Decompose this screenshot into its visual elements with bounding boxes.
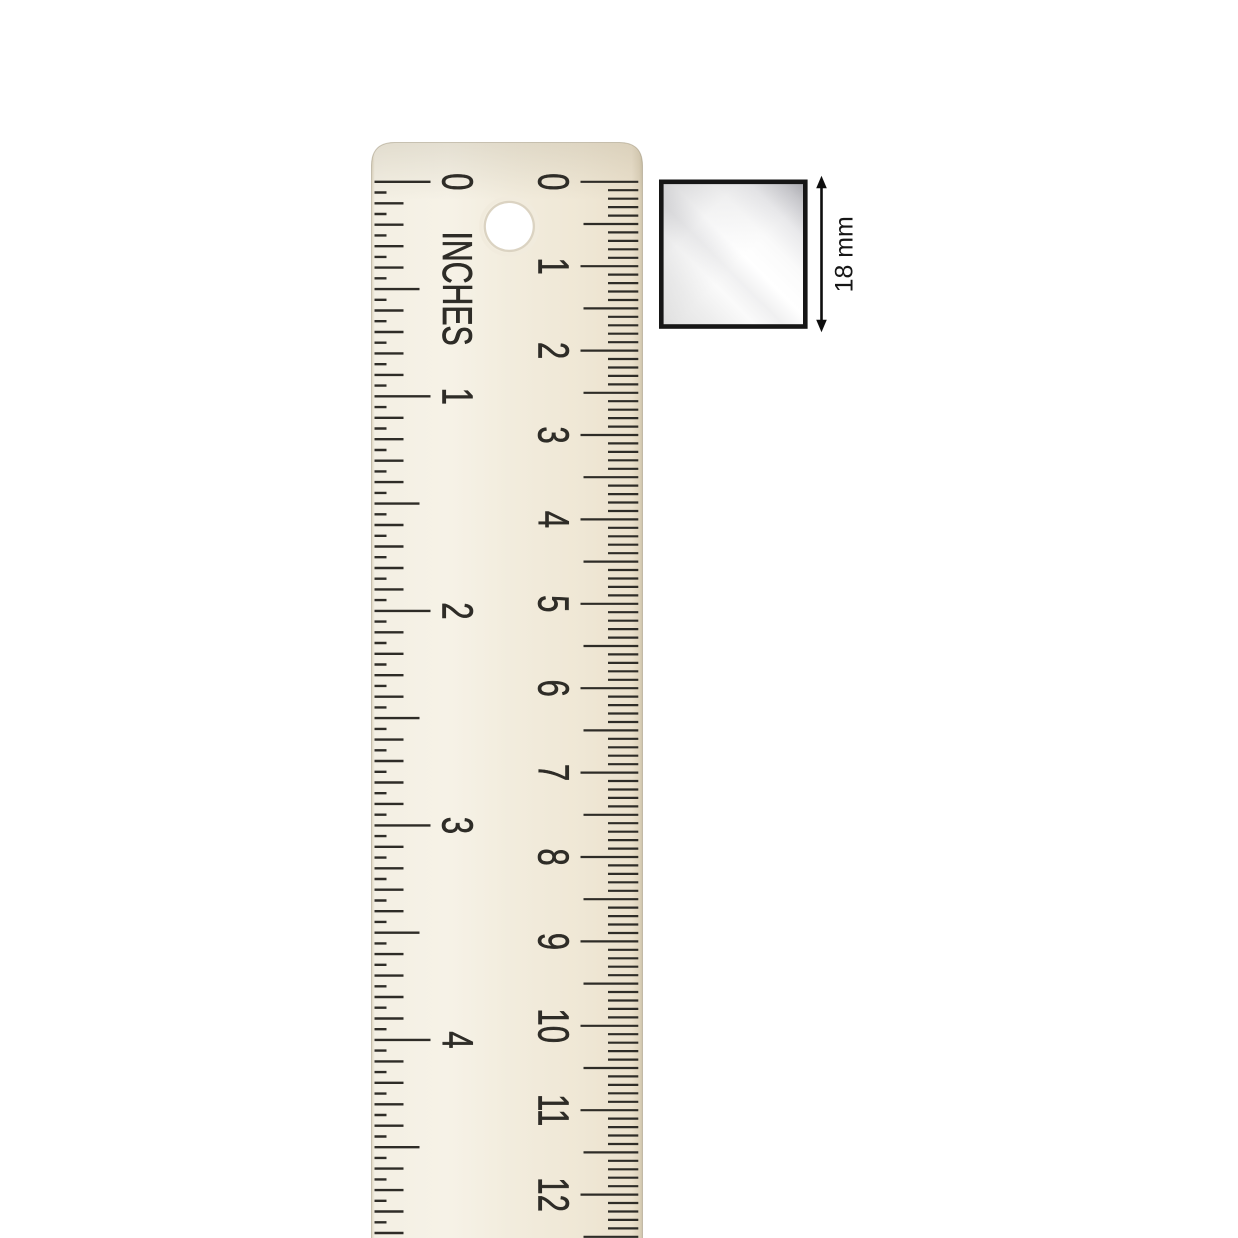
svg-text:1: 1 — [432, 388, 482, 405]
svg-text:10: 10 — [528, 1008, 578, 1043]
svg-text:0: 0 — [528, 173, 578, 190]
svg-text:5: 5 — [528, 595, 578, 612]
svg-text:0: 0 — [432, 173, 482, 190]
svg-text:3: 3 — [528, 426, 578, 443]
svg-text:2: 2 — [528, 342, 578, 359]
svg-text:7: 7 — [528, 764, 578, 781]
svg-text:INCHES: INCHES — [434, 232, 481, 346]
svg-text:3: 3 — [432, 817, 482, 834]
svg-text:6: 6 — [528, 680, 578, 697]
svg-text:2: 2 — [432, 602, 482, 619]
svg-text:12: 12 — [528, 1177, 578, 1212]
svg-text:4: 4 — [432, 1031, 482, 1048]
svg-text:9: 9 — [528, 933, 578, 950]
svg-text:11: 11 — [528, 1094, 578, 1126]
svg-text:1: 1 — [528, 258, 578, 275]
svg-text:18 mm: 18 mm — [831, 216, 859, 292]
svg-text:8: 8 — [528, 848, 578, 865]
svg-text:4: 4 — [528, 511, 578, 528]
